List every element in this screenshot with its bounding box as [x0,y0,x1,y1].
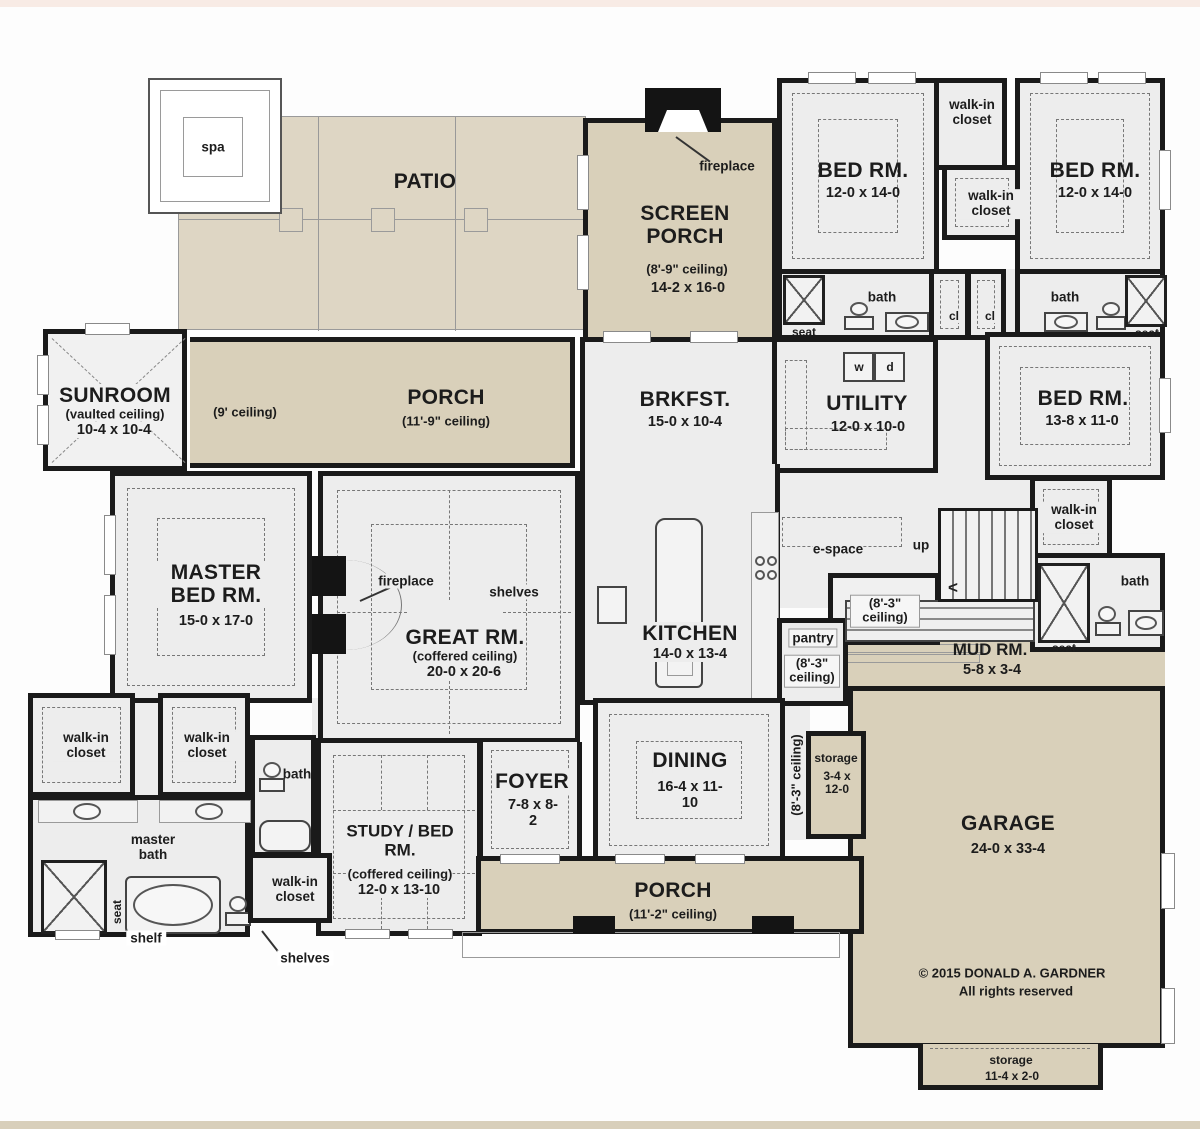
pantry-ceiling: (8'-3" ceiling) [784,655,840,688]
coffered-line [503,612,571,613]
brkfst-label: BRKFST. [640,388,731,412]
floor-plan: PATIO spa SCREEN PORCH (8'-9" ceiling) 1… [0,0,1200,1129]
fireplace-block [312,614,346,654]
porch-post [573,916,615,934]
walk-in-closet: walk-in closet [158,693,250,797]
page-top-strip [0,0,1200,7]
sunroom-label: SUNROOM [59,384,171,408]
master-bath: master bath seat [28,795,250,937]
kitchen-label: KITCHEN [642,622,737,646]
kitchen-dims: 14-0 x 13-4 [653,646,727,662]
shelves-label: shelves [489,585,539,600]
bedroom-dims: 12-0 x 14-0 [826,185,900,201]
toilet [850,302,868,316]
bath-label: bath [1121,574,1150,589]
bath-small: bath [250,735,316,857]
walk-in-closet: walk-in closet [248,853,332,923]
shower [783,275,825,325]
bath-top-left: seat bath [777,269,934,340]
sink [1054,315,1078,329]
sink [895,315,919,329]
closet-label: walk-in closet [174,731,240,761]
shelves-label: shelves [277,951,333,966]
window [1159,150,1171,210]
storage-bottom-label: storage [989,1053,1032,1067]
master-bedroom: MASTER BED RM. 15-0 x 17-0 [110,471,312,703]
patio-column [464,208,488,232]
pantry-label: pantry [788,629,837,648]
storage-side-dims: 3-4 x 12-0 [815,770,859,796]
sunroom: SUNROOM (vaulted ceiling) 10-4 x 10-4 [43,329,187,471]
patio-column [279,208,303,232]
sink [1135,616,1157,630]
screen-opening [577,155,589,210]
fireplace-label: fireplace [378,574,434,589]
closet-label: walk-in closet [1042,503,1106,533]
bathtub [259,820,311,852]
foyer-dims: 7-8 x 8-2 [506,798,560,830]
dining-dims: 16-4 x 11-10 [654,780,726,812]
foyer: FOYER 7-8 x 8-2 [478,742,582,862]
cooktop-burner [755,570,765,580]
coffered-line [381,755,382,810]
bedroom-top-left: BED RM. 12-0 x 14-0 [777,78,939,274]
foyer-label: FOYER [495,770,569,794]
pantry: pantry (8'-3" ceiling) [777,618,848,706]
seat-label: seat [792,325,816,339]
window [345,929,390,939]
bedroom-top-right: BED RM. 12-0 x 14-0 [1015,78,1165,274]
kitchen: KITCHEN 14-0 x 13-4 [580,464,780,705]
study-bedroom: STUDY / BED RM. (coffered ceiling) 12-0 … [316,738,482,936]
dining-room: DINING 16-4 x 11-10 [593,698,785,862]
bedroom-label: BED RM. [1050,159,1141,183]
shower [1125,275,1167,327]
shower [1038,563,1090,643]
garage-dims: 24-0 x 33-4 [971,841,1045,857]
cooktop-burner [767,556,777,566]
master-label: MASTER BED RM. [146,561,286,607]
walk-in-closet: walk-in closet [934,78,1007,170]
bedroom-right: BED RM. 13-8 x 11-0 [985,332,1165,480]
coffered-line [449,490,450,600]
mud-room-label: MUD RM. [953,640,1028,660]
bath-label: bath [1051,290,1080,305]
closet-label: walk-in closet [53,731,119,761]
sink [73,803,101,820]
window [603,331,651,343]
bedroom-dims: 13-8 x 11-0 [1045,413,1118,429]
storage-bottom [918,1044,1103,1090]
bath-label: bath [283,767,312,782]
window [104,595,116,655]
bedroom-dims: 12-0 x 14-0 [1058,185,1132,201]
storage-bottom-dims: 11-4 x 2-0 [985,1069,1039,1083]
fireplace-label: fireplace [699,159,755,174]
walk-in-closet: walk-in closet [28,693,135,797]
hall-ceiling-label: (8'-3" ceiling) [789,734,804,816]
window [85,323,130,335]
utility-room: w d UTILITY 12-0 x 10-0 [772,337,938,473]
sunroom-ceiling: (vaulted ceiling) [66,407,165,422]
utility-label: UTILITY [826,392,907,416]
patio-grid-line [318,117,319,331]
screen-porch-dims: 14-2 x 16-0 [651,280,725,296]
window [37,355,49,395]
seat-label: seat [1135,326,1159,340]
patio-grid-line [455,117,456,331]
e-space-label: e-space [813,542,863,557]
breakfast-room: BRKFST. 15-0 x 10-4 [580,337,777,469]
screen-porch-label: SCREEN PORCH [620,202,750,248]
cooktop-burner [767,570,777,580]
cl-label: cl [949,309,959,323]
great-room-ceiling: (coffered ceiling) [413,649,518,664]
kitchen-counter [751,512,779,702]
closet-label: walk-in closet [940,98,1004,128]
ceiling-label: (8'-3" ceiling) [850,595,920,628]
dryer-label: d [886,360,893,374]
rear-porch-ceiling: (11'-9" ceiling) [402,414,490,429]
master-bath-label: master bath [118,833,188,863]
screen-opening [577,235,589,290]
window [408,929,453,939]
cl-label: cl [985,309,995,323]
front-porch-ceiling: (11'-2" ceiling) [629,907,717,922]
coffered-line [333,810,475,811]
garage-side-door [1161,853,1175,909]
toilet-tank [259,778,285,792]
window [868,72,916,84]
bath-right: seat bath [1030,553,1165,652]
storage-dash [930,1048,1090,1049]
up-label: up [913,538,930,553]
porch-steps [462,932,840,958]
porch-post [752,916,794,934]
study-label: STUDY / BED RM. [341,822,459,859]
great-room-dims: 20-0 x 20-6 [427,664,501,680]
refrigerator [597,586,627,624]
cooktop-burner [755,556,765,566]
screen-porch: SCREEN PORCH (8'-9" ceiling) 14-2 x 16-0 [583,118,777,342]
study-dims: 12-0 x 13-10 [358,882,440,898]
garage-label: GARAGE [961,812,1055,836]
rear-ceiling-label: (9' ceiling) [213,405,277,420]
spa-label: spa [201,140,224,155]
storage-side-label: storage [814,751,857,765]
front-porch-label: PORCH [634,879,711,903]
closet-cl: cl [929,269,970,340]
copyright-line: © 2015 DONALD A. GARDNER [919,966,1106,981]
toilet [1098,606,1116,622]
closet-label: walk-in closet [262,875,328,905]
toilet-tank [1096,316,1126,330]
window [37,405,49,445]
sink [195,803,223,820]
fireplace-block [312,556,346,596]
seat-label: seat [1052,641,1076,655]
sunroom-dims: 10-4 x 10-4 [77,422,151,438]
bath-label: bath [868,290,897,305]
shelf-label: shelf [126,931,166,946]
rear-porch: PORCH (11'-9" ceiling) [308,337,575,468]
stair-direction-arrow: < [948,578,958,598]
toilet [229,896,247,912]
window [1159,378,1171,433]
coffered-line [427,755,428,810]
bedroom-label: BED RM. [1038,387,1129,411]
window [695,854,745,864]
walk-in-closet: walk-in closet [1030,476,1112,558]
toilet [1102,302,1120,316]
screen-porch-ceiling: (8'-9" ceiling) [646,262,728,277]
bathtub [133,884,213,926]
rear-porch-label: PORCH [407,386,484,410]
toilet [263,762,281,778]
dining-label: DINING [652,749,727,773]
window [55,930,100,940]
rights-line: All rights reserved [959,984,1073,999]
page-bottom-strip [0,1121,1200,1129]
rear-strip: (9' ceiling) [190,337,312,468]
window [104,515,116,575]
patio-column [371,208,395,232]
window [690,331,738,343]
window [615,854,665,864]
bath-top-right: bath seat [1015,269,1165,340]
front-porch: PORCH (11'-2" ceiling) [476,856,864,934]
master-dims: 15-0 x 17-0 [179,613,253,629]
window [1098,72,1146,84]
great-room-label: GREAT RM. [406,626,525,650]
seat-label: seat [110,900,124,924]
closet-label: walk-in closet [959,189,1023,219]
garage-side-door [1161,988,1175,1044]
bedroom-label: BED RM. [818,159,909,183]
study-ceiling: (coffered ceiling) [348,867,453,882]
toilet-tank [844,316,874,330]
front-door-opening [500,854,560,864]
window [808,72,856,84]
closet-cl: cl [966,269,1006,340]
window [1040,72,1088,84]
brkfst-dims: 15-0 x 10-4 [648,414,722,430]
washer-label: w [854,360,863,374]
walk-in-closet: walk-in closet [942,165,1022,240]
coffered-line [449,676,450,734]
utility-dims: 12-0 x 10-0 [831,419,905,435]
mud-room-dims: 5-8 x 3-4 [963,662,1021,678]
toilet-tank [1095,622,1121,636]
shower [41,860,107,934]
patio-label: PATIO [394,170,457,194]
